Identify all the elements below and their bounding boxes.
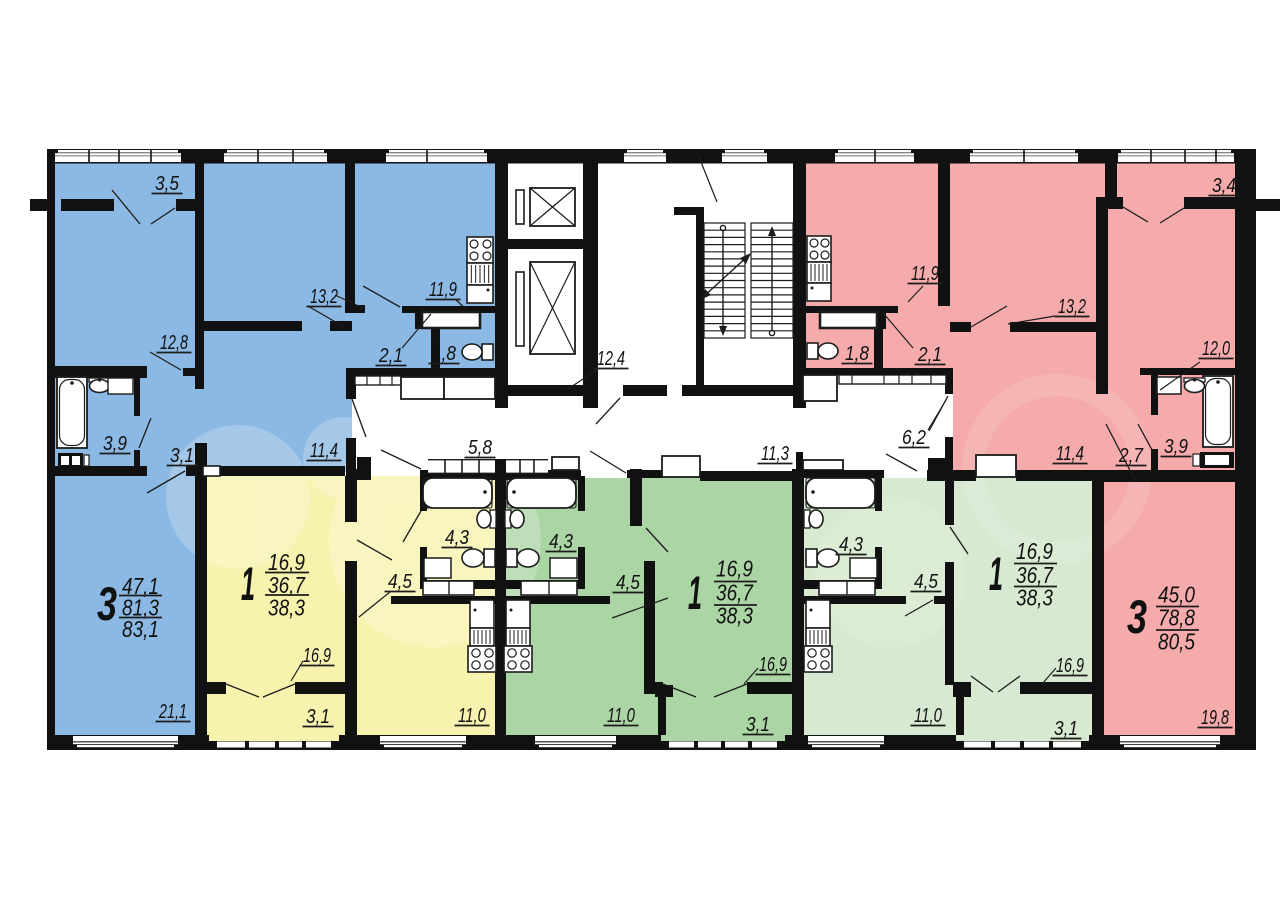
svg-text:12,0: 12,0 [1202, 338, 1230, 360]
svg-text:1,8: 1,8 [845, 343, 869, 365]
svg-text:12,8: 12,8 [160, 332, 188, 354]
svg-text:4,3: 4,3 [549, 531, 573, 553]
svg-text:11,0: 11,0 [607, 705, 635, 727]
svg-text:1: 1 [989, 547, 1003, 600]
svg-text:3,4: 3,4 [1212, 175, 1236, 197]
svg-text:3,1: 3,1 [746, 714, 770, 736]
svg-text:83,1: 83,1 [122, 616, 159, 642]
svg-text:11,9: 11,9 [911, 263, 939, 285]
svg-text:4,3: 4,3 [839, 534, 863, 556]
svg-text:19,8: 19,8 [1201, 707, 1229, 729]
svg-text:11,4: 11,4 [310, 440, 338, 462]
svg-text:3: 3 [1127, 590, 1147, 643]
svg-text:13,2: 13,2 [310, 286, 338, 308]
svg-text:1: 1 [241, 557, 255, 610]
svg-text:13,2: 13,2 [1058, 296, 1086, 318]
svg-text:38,3: 38,3 [716, 603, 753, 629]
svg-text:3,9: 3,9 [1164, 436, 1188, 458]
svg-text:4,5: 4,5 [616, 572, 641, 594]
svg-text:16,9: 16,9 [759, 654, 787, 676]
svg-text:16,9: 16,9 [716, 556, 753, 582]
svg-text:21,1: 21,1 [158, 701, 187, 723]
svg-text:3,9: 3,9 [103, 433, 127, 455]
svg-text:11,0: 11,0 [458, 705, 486, 727]
svg-text:4,5: 4,5 [388, 571, 413, 593]
svg-text:16,9: 16,9 [303, 645, 331, 667]
svg-text:12,4: 12,4 [597, 348, 625, 370]
svg-text:38,3: 38,3 [268, 595, 305, 621]
svg-text:1: 1 [688, 566, 702, 619]
svg-text:16,9: 16,9 [1016, 538, 1053, 564]
svg-text:3: 3 [97, 577, 117, 630]
svg-text:11,4: 11,4 [1056, 443, 1084, 465]
svg-text:2,1: 2,1 [378, 345, 403, 367]
svg-text:2,7: 2,7 [1118, 445, 1144, 467]
svg-text:3,5: 3,5 [155, 173, 180, 195]
svg-text:16,9: 16,9 [1056, 655, 1084, 677]
svg-text:38,3: 38,3 [1016, 585, 1053, 611]
svg-text:3,1: 3,1 [1054, 718, 1078, 740]
svg-text:3,1: 3,1 [170, 445, 194, 467]
svg-text:4,3: 4,3 [445, 527, 469, 549]
svg-text:2,1: 2,1 [917, 344, 942, 366]
svg-text:78,8: 78,8 [1158, 605, 1195, 631]
svg-text:4,5: 4,5 [914, 571, 939, 593]
svg-text:5,8: 5,8 [468, 437, 492, 459]
svg-text:6,2: 6,2 [902, 427, 926, 449]
svg-text:11,9: 11,9 [429, 279, 457, 301]
svg-text:11,3: 11,3 [761, 443, 789, 465]
svg-text:80,5: 80,5 [1158, 629, 1196, 655]
svg-text:3,1: 3,1 [306, 706, 330, 728]
svg-text:1,8: 1,8 [432, 343, 456, 365]
svg-text:11,0: 11,0 [914, 705, 942, 727]
